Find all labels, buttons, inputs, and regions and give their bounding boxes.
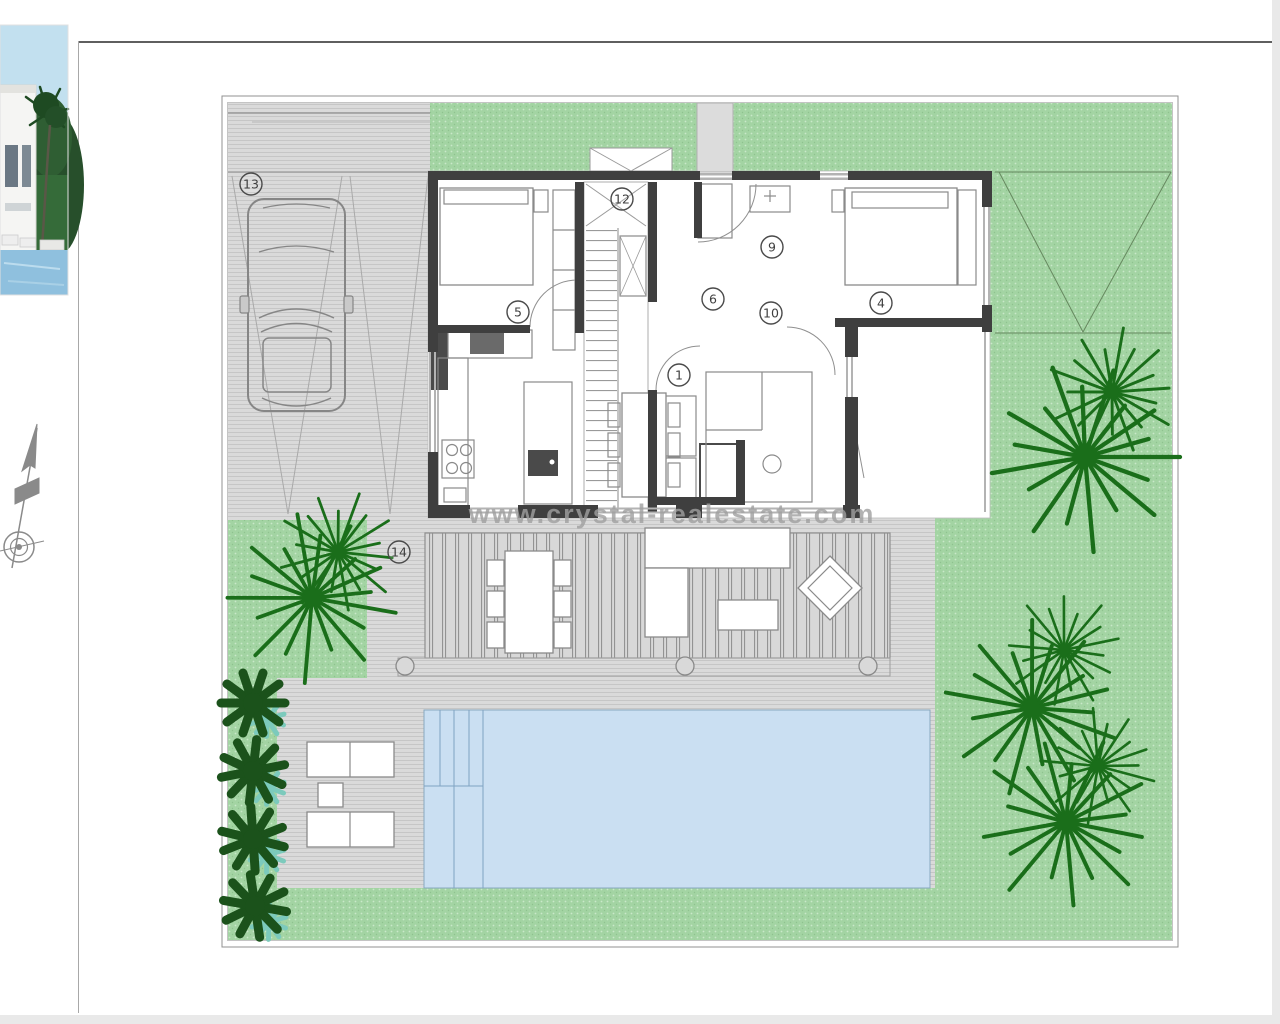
svg-text:13: 13 xyxy=(243,177,259,192)
window-bottom-strip xyxy=(0,1015,1280,1024)
deck-dining-set xyxy=(487,551,571,653)
room-marker-6: 6 xyxy=(702,288,724,310)
svg-text:6: 6 xyxy=(709,292,717,307)
floorplan-canvas: www.crystal-realestate.com 1 4 5 xyxy=(0,0,1280,1024)
watermark: www.crystal-realestate.com xyxy=(468,499,876,529)
driveway-parking xyxy=(228,103,430,520)
svg-text:1: 1 xyxy=(675,368,683,383)
svg-text:10: 10 xyxy=(763,306,779,321)
svg-text:5: 5 xyxy=(514,305,522,320)
room-marker-1: 1 xyxy=(668,364,690,386)
real-estate-floorplan-page: www.crystal-realestate.com 1 4 5 xyxy=(0,0,1280,1024)
bedroom4-furniture xyxy=(832,188,976,285)
svg-text:12: 12 xyxy=(614,192,630,207)
roof-skylight xyxy=(590,148,672,171)
window-right-strip xyxy=(1272,0,1280,1024)
room-marker-13: 13 xyxy=(240,173,262,195)
room-marker-10: 10 xyxy=(760,302,782,324)
room-marker-12: 12 xyxy=(611,188,633,210)
svg-text:4: 4 xyxy=(877,296,885,311)
room-marker-5: 5 xyxy=(507,301,529,323)
svg-text:9: 9 xyxy=(768,240,776,255)
room-marker-14: 14 xyxy=(388,541,410,563)
svg-text:14: 14 xyxy=(391,545,407,560)
room-marker-4: 4 xyxy=(870,292,892,314)
entrance-path xyxy=(697,103,733,172)
room-marker-9: 9 xyxy=(761,236,783,258)
page-top-rule xyxy=(78,41,1280,43)
swimming-pool xyxy=(424,710,930,888)
